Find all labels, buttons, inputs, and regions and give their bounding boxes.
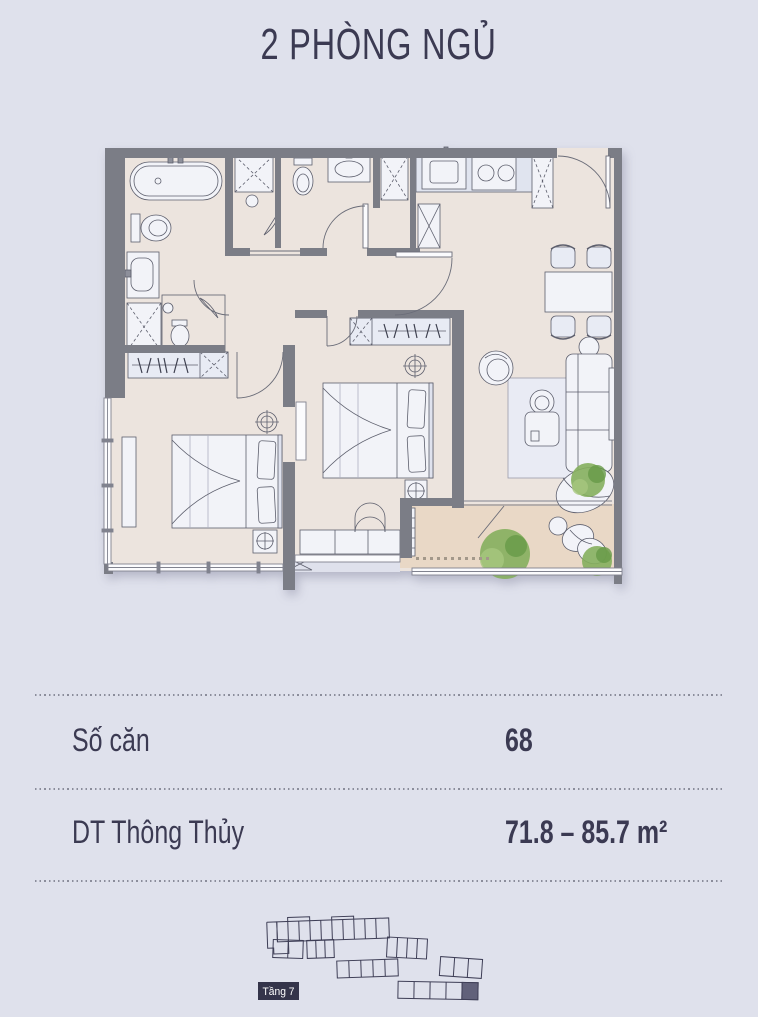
wall-bed1-top [125, 345, 225, 353]
toilet-master [131, 214, 171, 242]
window-console [122, 437, 136, 527]
unit-number-value: 68 [505, 720, 533, 760]
fridge-cabinet [418, 204, 440, 248]
floor-label: Tầng 7 [263, 986, 295, 998]
wall-bed2-top-a [295, 310, 327, 318]
keyplan-strip-c [387, 937, 428, 959]
wall-bath-4 [410, 158, 416, 248]
divider-3 [35, 880, 723, 882]
area-value-wrap: 71.8 – 85.7 m² [505, 812, 713, 852]
wall-bed2-right [452, 318, 464, 508]
wall-central-b [283, 462, 295, 555]
shower-3 [381, 156, 408, 200]
divider-2 [35, 788, 723, 790]
wall-corridor-a [225, 248, 250, 256]
wall-top [107, 148, 557, 158]
balcony-railing [412, 568, 622, 575]
brochure-page: { "title": "2 PHÒNG NGỦ", "info": { "row… [0, 0, 758, 1017]
wall-central-col [283, 555, 295, 590]
wall-bath-1 [225, 158, 233, 256]
area-value: 71.8 – 85.7 m² [505, 812, 667, 852]
unit-number-label: Số căn [72, 720, 150, 760]
dining-table [545, 272, 612, 312]
wall-central-a [283, 345, 295, 407]
wardrobe-bed2 [350, 318, 450, 345]
keyplan-strip-d [337, 959, 399, 978]
wall-right [614, 148, 622, 584]
nightstand-master [253, 530, 277, 553]
bathtub [130, 156, 222, 200]
desk [525, 412, 559, 446]
unit-number-row: Số căn [72, 720, 172, 760]
wall-left-thick [105, 148, 125, 398]
stove [472, 156, 516, 190]
vanity-sink-master [125, 252, 159, 298]
window-left [102, 398, 113, 564]
desk-chair [530, 390, 554, 414]
keyplan-strip-e [439, 957, 482, 979]
keyplan-unit-highlighted [462, 982, 478, 999]
wall-closet-left [400, 498, 412, 558]
window-bottom-bed2 [295, 555, 400, 562]
wall-bath-3 [373, 158, 380, 208]
keyplan-strip-b2 [307, 940, 335, 959]
page-title: 2 PHÒNG NGỦ [0, 19, 758, 71]
wall-bed2-top-b [358, 310, 464, 318]
unit-number-value-wrap: 68 [505, 720, 541, 760]
window-bottom-bed1 [108, 562, 283, 573]
bed-2 [323, 383, 433, 478]
toilet-2 [293, 158, 313, 195]
page-title-text: 2 PHÒNG NGỦ [261, 19, 497, 71]
floor-plan [100, 140, 630, 600]
balcony-table [549, 517, 567, 535]
floor-label-box: Tầng 7 [258, 982, 299, 1000]
keyplan-strip-top [267, 914, 390, 954]
armchair-round [479, 351, 513, 385]
area-label: DT Thông Thủy [72, 812, 244, 852]
wall-bath-2 [275, 158, 281, 248]
key-plan: Tầng 7 [250, 912, 530, 1007]
entry-closet [532, 154, 553, 208]
bed-master [172, 435, 282, 528]
keyplan-strip-f [398, 981, 478, 999]
divider-1 [35, 694, 723, 696]
wall-corridor-b [300, 248, 327, 256]
pocket-panel [296, 402, 306, 460]
floor-notch [295, 562, 400, 572]
shower-master [127, 303, 161, 351]
wardrobe-master [128, 352, 228, 378]
area-row: DT Thông Thủy [72, 812, 293, 852]
